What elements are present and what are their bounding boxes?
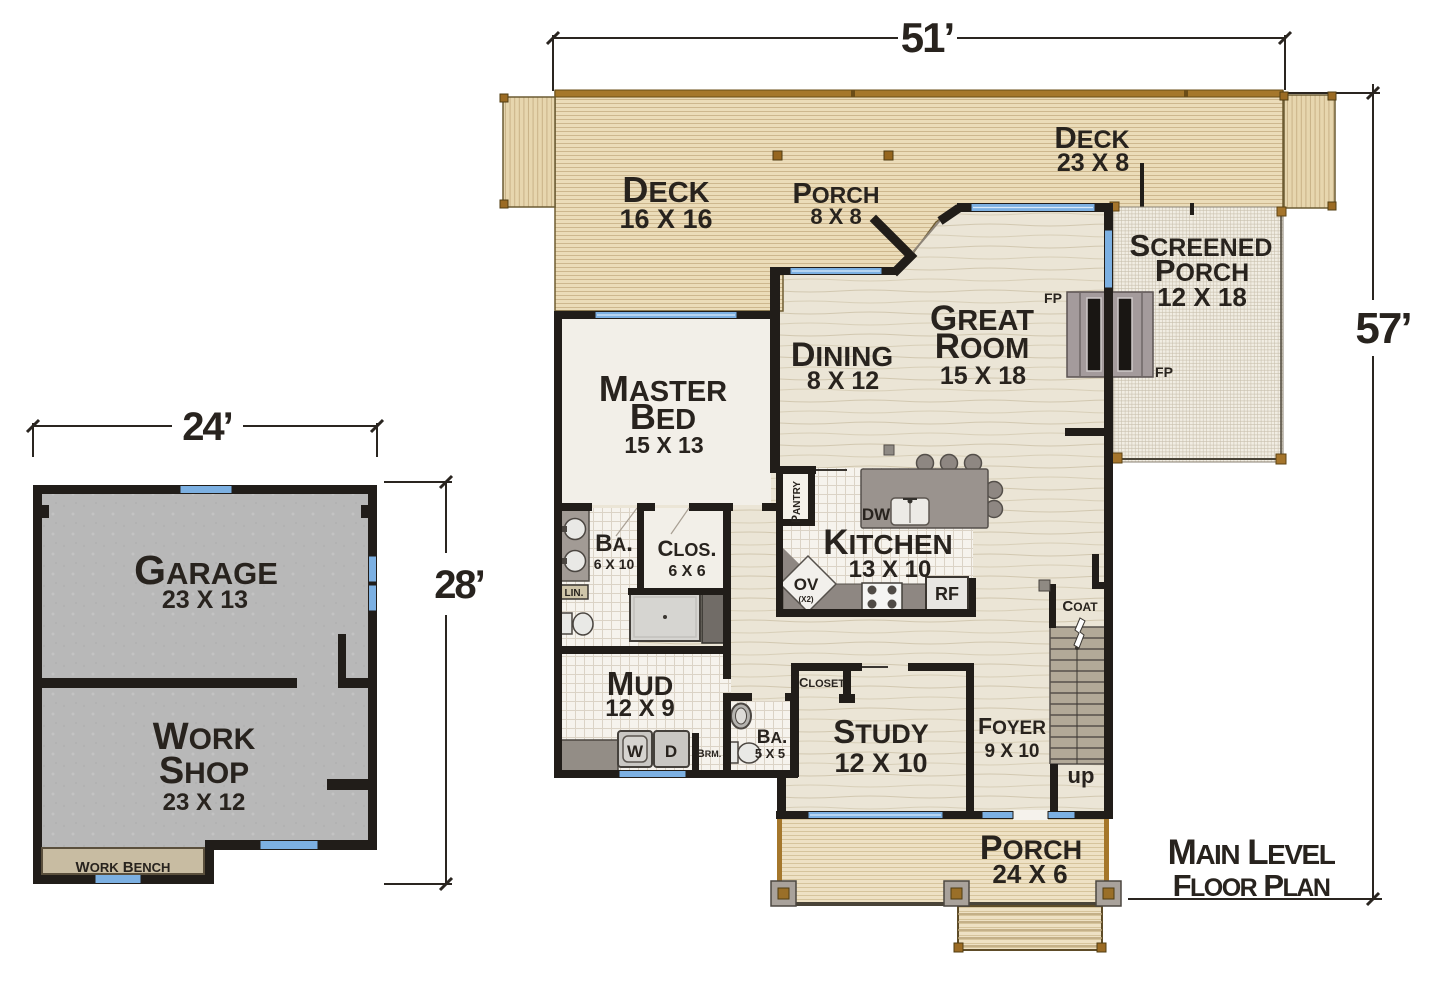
svg-text:W: W: [627, 742, 644, 761]
svg-text:9 X 10: 9 X 10: [985, 741, 1040, 762]
svg-text:COAT: COAT: [1062, 598, 1098, 615]
svg-text:12 X 18: 12 X 18: [1157, 282, 1247, 312]
svg-text:24 X 6: 24 X 6: [992, 859, 1067, 889]
svg-text:MAIN LEVEL: MAIN LEVEL: [1168, 833, 1336, 872]
svg-text:WORK BENCH: WORK BENCH: [76, 859, 171, 876]
svg-text:13 X 10: 13 X 10: [849, 556, 932, 583]
svg-text:FLOOR PLAN: FLOOR PLAN: [1173, 868, 1330, 903]
svg-text:12 X 9: 12 X 9: [605, 695, 674, 722]
svg-text:RF: RF: [935, 584, 959, 604]
svg-text:8 X 12: 8 X 12: [807, 367, 879, 395]
svg-text:DW: DW: [862, 505, 891, 524]
svg-text:SCREENED: SCREENED: [1130, 228, 1273, 263]
svg-text:23 X 8: 23 X 8: [1057, 149, 1129, 177]
svg-text:16 X 16: 16 X 16: [619, 204, 712, 234]
svg-text:SHOP: SHOP: [159, 750, 249, 792]
svg-text:6 X 6: 6 X 6: [668, 563, 705, 580]
svg-text:57’: 57’: [1355, 304, 1410, 353]
svg-text:15 X 13: 15 X 13: [624, 432, 703, 458]
svg-text:23 X 12: 23 X 12: [163, 789, 246, 816]
svg-text:15 X 18: 15 X 18: [940, 362, 1026, 390]
svg-text:5 X 5: 5 X 5: [755, 746, 785, 761]
svg-text:24’: 24’: [182, 405, 232, 449]
svg-text:FP: FP: [1155, 364, 1173, 380]
svg-text:6 X 10: 6 X 10: [594, 556, 635, 572]
svg-text:D: D: [665, 742, 677, 761]
svg-text:CLOS.: CLOS.: [657, 536, 716, 561]
svg-text:CLOSET: CLOSET: [799, 675, 845, 690]
svg-text:(X2): (X2): [798, 595, 813, 604]
svg-text:BA.: BA.: [757, 727, 788, 748]
svg-text:STUDY: STUDY: [833, 713, 929, 750]
svg-text:FP: FP: [1044, 290, 1062, 306]
svg-text:8 X 8: 8 X 8: [810, 204, 861, 229]
svg-text:PANTRY: PANTRY: [789, 481, 803, 523]
svg-text:LIN.: LIN.: [565, 588, 584, 599]
svg-text:up: up: [1068, 763, 1095, 788]
svg-text:51’: 51’: [901, 14, 953, 61]
svg-text:OV: OV: [794, 575, 819, 594]
svg-text:28’: 28’: [434, 563, 484, 607]
svg-text:ROOM: ROOM: [935, 327, 1030, 366]
svg-text:12 X 10: 12 X 10: [834, 748, 927, 778]
svg-text:BRM.: BRM.: [697, 748, 721, 760]
svg-text:23 X 13: 23 X 13: [162, 586, 248, 614]
svg-text:BA.: BA.: [595, 530, 633, 557]
